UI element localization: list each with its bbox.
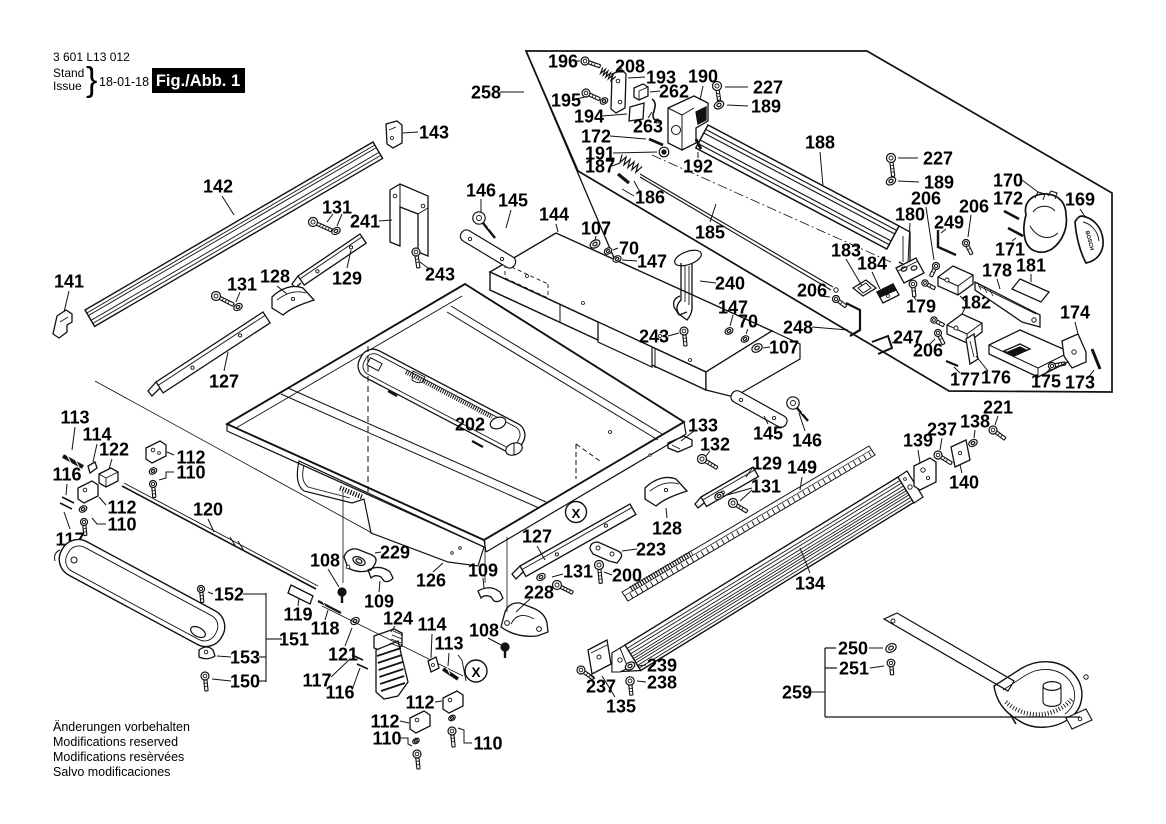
- svg-text:118: 118: [310, 619, 339, 639]
- svg-text:251: 251: [839, 659, 869, 679]
- svg-text:112: 112: [405, 693, 434, 713]
- svg-text:151: 151: [279, 630, 309, 650]
- svg-text:170: 170: [993, 171, 1023, 191]
- svg-text:X: X: [572, 506, 581, 521]
- svg-text:248: 248: [783, 318, 813, 338]
- svg-text:Modifications resèrvées: Modifications resèrvées: [53, 750, 184, 764]
- svg-text:109: 109: [468, 561, 498, 581]
- svg-text:131: 131: [322, 198, 352, 218]
- svg-text:206: 206: [797, 281, 827, 301]
- svg-text:120: 120: [193, 500, 223, 520]
- svg-text:146: 146: [792, 431, 822, 451]
- svg-text:206: 206: [959, 197, 989, 217]
- svg-text:240: 240: [715, 274, 745, 294]
- svg-text:128: 128: [260, 267, 290, 287]
- svg-text:185: 185: [695, 223, 725, 243]
- svg-text:179: 179: [906, 297, 936, 317]
- svg-text:144: 144: [539, 205, 569, 225]
- svg-text:127: 127: [209, 372, 239, 392]
- svg-text:119: 119: [283, 605, 312, 625]
- svg-text:243: 243: [639, 327, 669, 347]
- svg-text:145: 145: [753, 424, 783, 444]
- svg-text:174: 174: [1060, 303, 1090, 323]
- svg-text:172: 172: [993, 189, 1023, 209]
- svg-text:110: 110: [176, 463, 205, 483]
- svg-text:143: 143: [419, 123, 449, 143]
- svg-text:131: 131: [751, 477, 781, 497]
- svg-text:113: 113: [434, 634, 463, 654]
- svg-text:146: 146: [466, 181, 496, 201]
- svg-text:132: 132: [700, 435, 730, 455]
- svg-text:238: 238: [647, 673, 677, 693]
- svg-text:110: 110: [473, 734, 502, 754]
- svg-text:116: 116: [325, 683, 354, 703]
- svg-text:116: 116: [52, 465, 81, 485]
- svg-text:131: 131: [227, 275, 257, 295]
- svg-text:262: 262: [659, 82, 689, 102]
- svg-text:169: 169: [1065, 190, 1095, 210]
- svg-text:259: 259: [782, 683, 812, 703]
- svg-text:229: 229: [380, 543, 410, 563]
- svg-text:Fig./Abb. 1: Fig./Abb. 1: [156, 72, 240, 90]
- svg-text:126: 126: [416, 571, 446, 591]
- svg-text:110: 110: [372, 729, 401, 749]
- svg-text:152: 152: [214, 585, 244, 605]
- svg-text:258: 258: [471, 83, 501, 103]
- svg-text:Salvo modificaciones: Salvo modificaciones: [53, 765, 170, 779]
- svg-text:149: 149: [787, 458, 817, 478]
- svg-text:134: 134: [795, 574, 825, 594]
- svg-text:177: 177: [950, 370, 980, 390]
- svg-text:Stand: Stand: [53, 66, 84, 80]
- svg-text:153: 153: [230, 648, 260, 668]
- svg-text:241: 241: [350, 212, 380, 232]
- svg-text:250: 250: [838, 639, 868, 659]
- svg-text:114: 114: [417, 615, 446, 635]
- svg-text:X: X: [471, 665, 480, 680]
- svg-text:Modifications reserved: Modifications reserved: [53, 735, 178, 749]
- svg-text:237: 237: [927, 420, 957, 440]
- svg-text:221: 221: [983, 398, 1013, 418]
- svg-text:223: 223: [636, 540, 666, 560]
- svg-text:228: 228: [524, 583, 554, 603]
- svg-text:110: 110: [107, 515, 136, 535]
- svg-text:108: 108: [310, 551, 340, 571]
- svg-text:206: 206: [911, 189, 941, 209]
- svg-text:70: 70: [738, 312, 758, 332]
- svg-text:192: 192: [683, 157, 713, 177]
- svg-text:124: 124: [383, 609, 413, 629]
- svg-text:184: 184: [857, 254, 887, 274]
- svg-text:135: 135: [606, 697, 636, 717]
- svg-text:127: 127: [522, 527, 552, 547]
- svg-text:150: 150: [230, 672, 260, 692]
- svg-text:140: 140: [949, 473, 979, 493]
- svg-text:178: 178: [982, 261, 1012, 281]
- svg-text:142: 142: [203, 177, 233, 197]
- svg-text:Issue: Issue: [53, 79, 82, 93]
- svg-text:208: 208: [615, 57, 645, 77]
- svg-text:191: 191: [585, 144, 615, 164]
- svg-text:121: 121: [328, 645, 358, 665]
- svg-text:129: 129: [752, 454, 782, 474]
- svg-text:173: 173: [1065, 373, 1095, 393]
- svg-text:108: 108: [469, 621, 499, 641]
- svg-text:227: 227: [923, 149, 953, 169]
- svg-text:122: 122: [99, 440, 129, 460]
- svg-text:206: 206: [913, 341, 943, 361]
- svg-text:243: 243: [425, 265, 455, 285]
- svg-text:227: 227: [753, 78, 783, 98]
- svg-text:141: 141: [54, 272, 84, 292]
- svg-text:131: 131: [563, 562, 593, 582]
- svg-text:202: 202: [455, 415, 485, 435]
- svg-text:186: 186: [635, 188, 665, 208]
- svg-text:107: 107: [769, 338, 799, 358]
- svg-text:263: 263: [633, 117, 663, 137]
- svg-text:189: 189: [751, 97, 781, 117]
- svg-text:237: 237: [586, 677, 616, 697]
- svg-text:145: 145: [498, 191, 528, 211]
- svg-text:Änderungen vorbehalten: Änderungen vorbehalten: [53, 720, 190, 734]
- svg-text:194: 194: [574, 107, 604, 127]
- svg-text:175: 175: [1031, 372, 1061, 392]
- svg-text:176: 176: [981, 368, 1011, 388]
- svg-text:107: 107: [581, 219, 611, 239]
- svg-text:}: }: [86, 61, 97, 99]
- svg-text:129: 129: [332, 269, 362, 289]
- svg-text:188: 188: [805, 133, 835, 153]
- svg-text:147: 147: [637, 252, 667, 272]
- svg-text:181: 181: [1016, 256, 1046, 276]
- svg-text:109: 109: [364, 592, 394, 612]
- svg-text:128: 128: [652, 519, 682, 539]
- svg-text:18-01-18: 18-01-18: [99, 75, 149, 89]
